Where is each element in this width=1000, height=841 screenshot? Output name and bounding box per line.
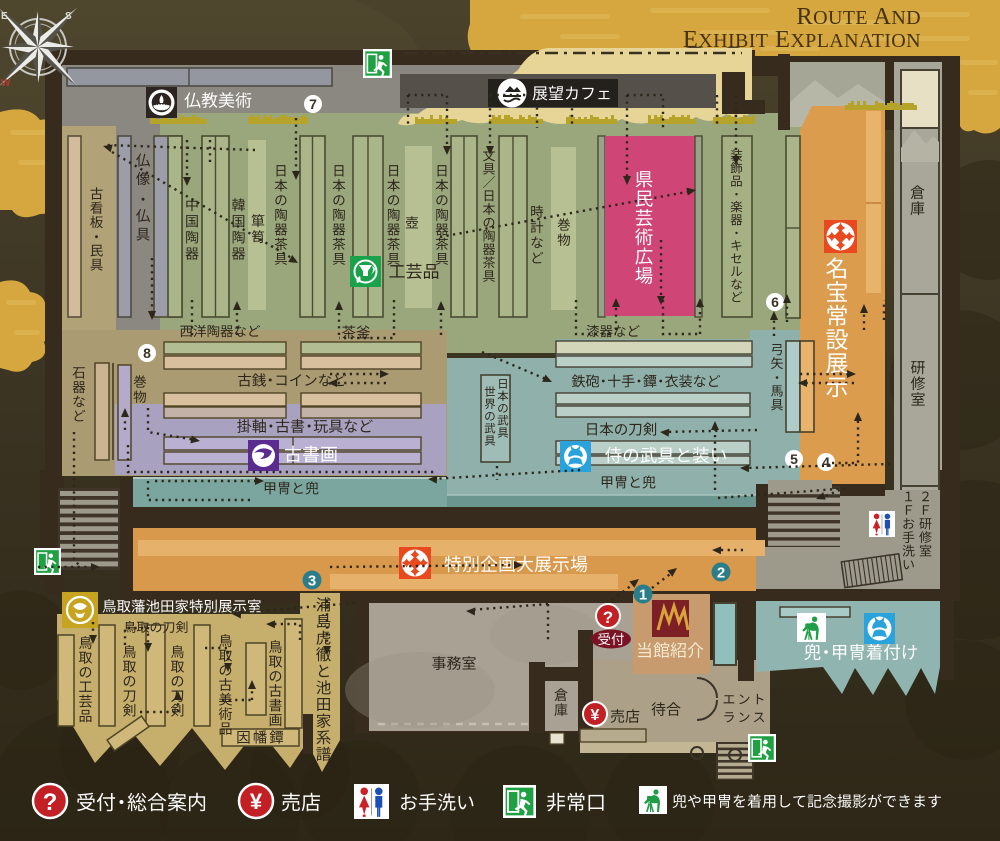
svg-text:ROUTE AND: ROUTE AND [796, 3, 921, 30]
svg-text:3: 3 [308, 572, 316, 589]
svg-text:8: 8 [143, 345, 151, 361]
svg-text:1: 1 [639, 586, 647, 603]
svg-text:?: ? [603, 608, 613, 627]
svg-text:¥: ¥ [250, 789, 263, 814]
svg-text:E: E [1, 11, 8, 22]
svg-text:7: 7 [309, 96, 317, 112]
svg-text:2: 2 [717, 564, 725, 581]
svg-text:W: W [1, 78, 11, 89]
svg-text:¥: ¥ [591, 707, 600, 724]
svg-text:6: 6 [771, 294, 779, 310]
svg-text:5: 5 [790, 451, 798, 467]
svg-text:4: 4 [822, 454, 830, 470]
svg-text:S: S [65, 11, 72, 22]
svg-text:?: ? [43, 789, 58, 816]
